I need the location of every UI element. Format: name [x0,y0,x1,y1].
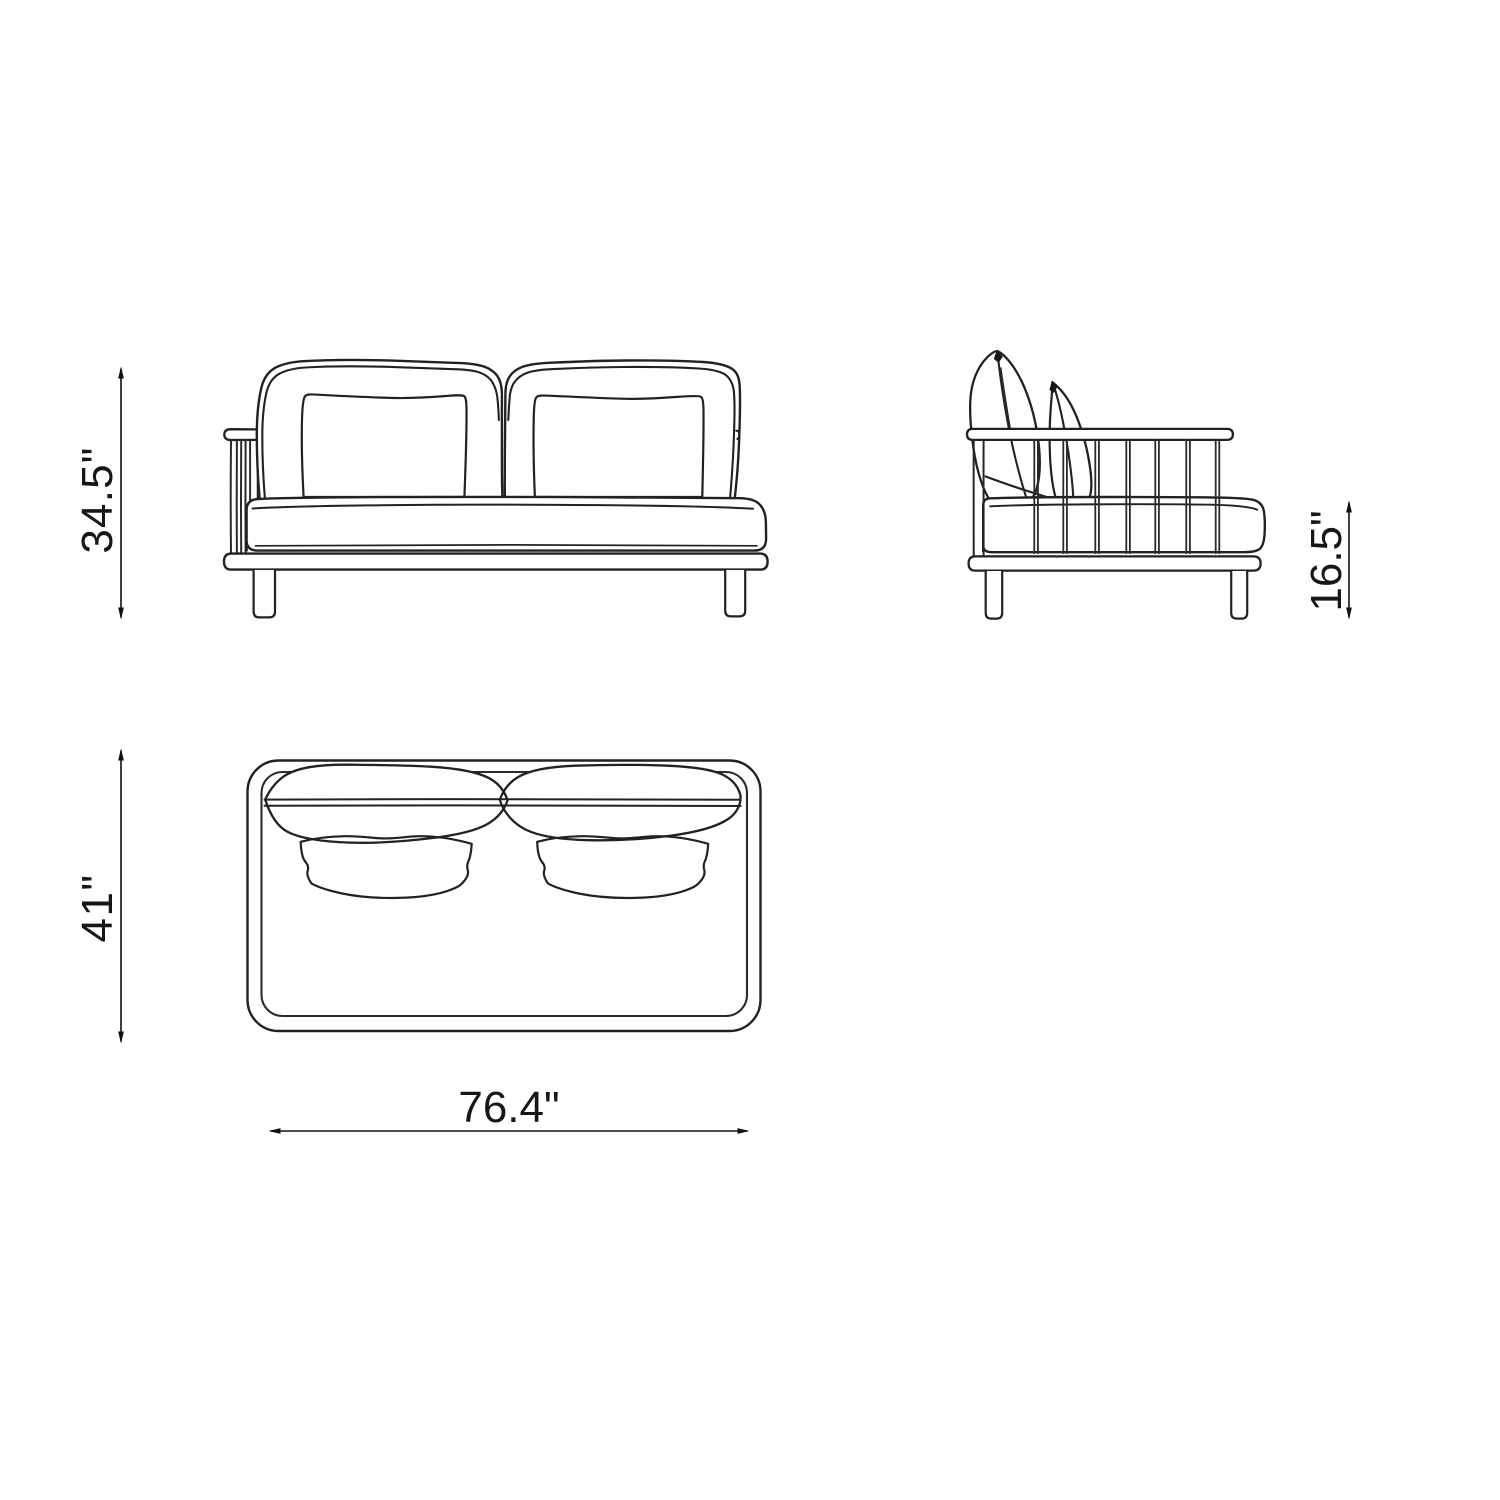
svg-text:34.5": 34.5" [73,446,122,553]
svg-text:76.4": 76.4" [458,1083,559,1132]
svg-text:16.5": 16.5" [1302,510,1351,611]
svg-text:41": 41" [73,873,122,942]
